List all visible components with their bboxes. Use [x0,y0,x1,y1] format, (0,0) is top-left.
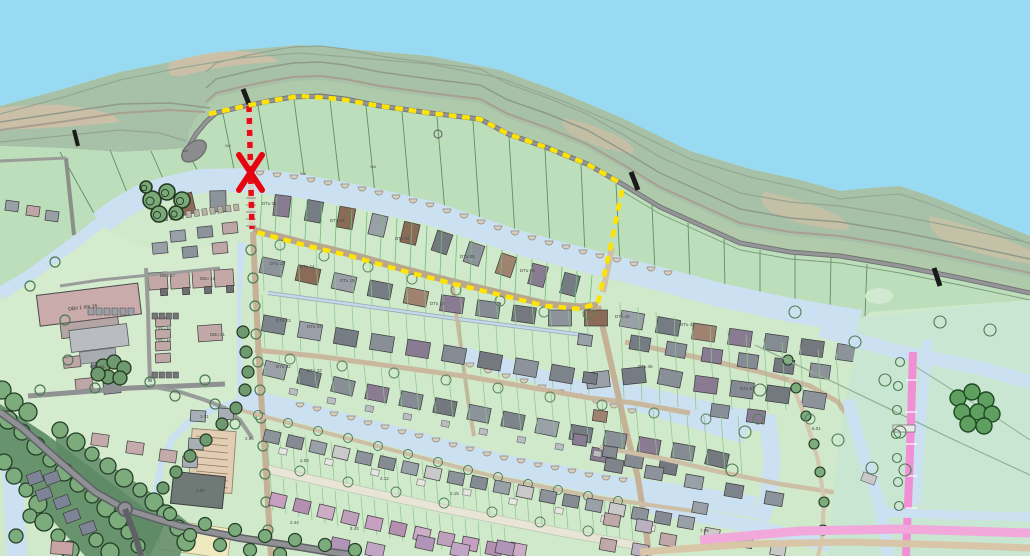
svg-text:Wat: Wat [370,165,376,169]
svg-text:DTu 15: DTu 15 [340,278,355,283]
svg-text:DTu 24: DTu 24 [307,324,322,329]
svg-text:DTu 14: DTu 14 [300,264,315,269]
svg-text:2.42: 2.42 [350,526,359,531]
svg-text:DBo 19: DBo 19 [200,276,216,281]
svg-text:7.09: 7.09 [700,528,709,533]
svg-text:2.12: 2.12 [380,476,389,481]
svg-text:DTu 46: DTu 46 [638,364,653,369]
svg-text:DTu 01: DTu 01 [262,201,277,206]
svg-text:DTu 23: DTu 23 [276,318,291,323]
svg-text:DTu 02: DTu 02 [330,218,345,223]
svg-text:Wel: Wel [300,172,306,176]
svg-text:DBo 21: DBo 21 [210,332,226,337]
svg-text:2.05: 2.05 [245,436,254,441]
svg-text:DBo 23: DBo 23 [156,338,172,343]
svg-text:DTu 42: DTu 42 [680,322,695,327]
svg-text:DTu 05: DTu 05 [460,254,475,259]
svg-text:DBo 31: DBo 31 [90,364,106,369]
svg-text:DTu 40: DTu 40 [615,314,630,319]
svg-text:1.06: 1.06 [196,488,205,493]
svg-text:DBo 17: DBo 17 [160,273,176,278]
svg-text:DBo 22: DBo 22 [156,326,172,331]
svg-text:2.08: 2.08 [300,458,309,463]
svg-text:DTu 13: DTu 13 [270,261,285,266]
svg-text:DTu 06: DTu 06 [520,268,535,273]
svg-text:2.44: 2.44 [290,520,299,525]
svg-text:DTu 61: DTu 61 [740,386,755,391]
svg-text:DTu 04: DTu 04 [395,236,410,241]
svg-text:6.01: 6.01 [812,426,821,431]
svg-text:DTu 32: DTu 32 [276,364,291,369]
svg-text:DTu 17: DTu 17 [430,301,445,306]
svg-text:DTu 33: DTu 33 [307,368,322,373]
svg-text:1.01: 1.01 [200,414,209,419]
svg-text:Wel: Wel [225,144,231,148]
svg-text:2.15: 2.15 [450,491,459,496]
svg-text:Wat: Wat [182,149,188,153]
